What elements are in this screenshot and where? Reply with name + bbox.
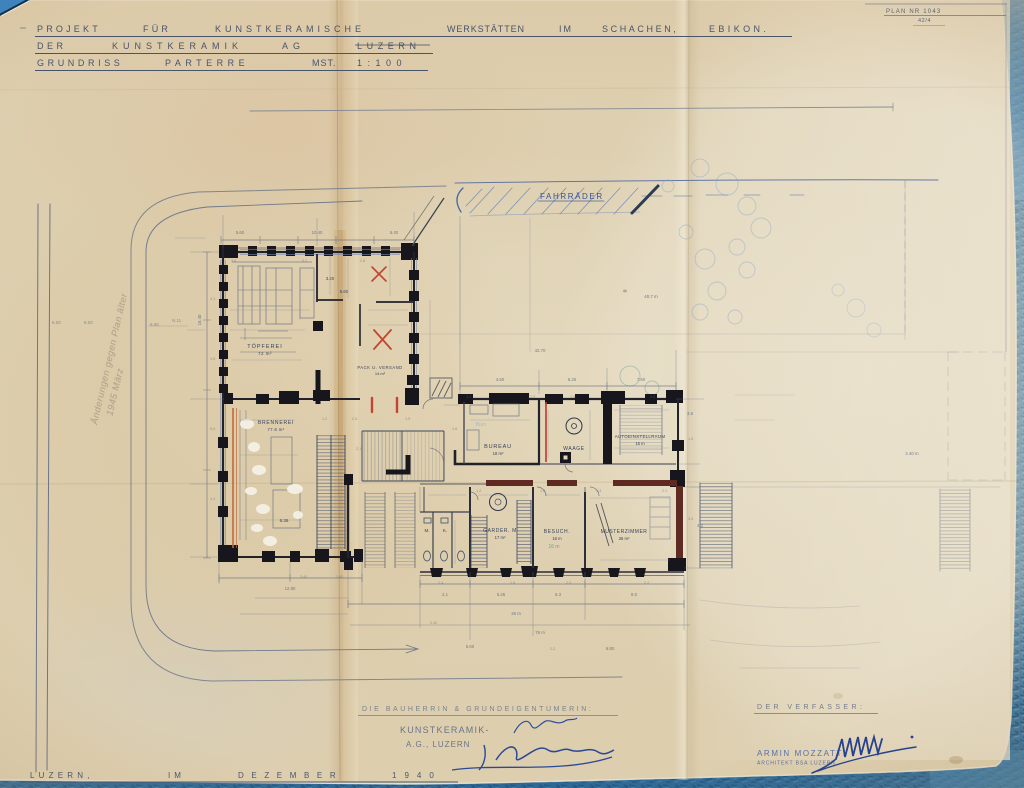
svg-text:5.40: 5.40	[390, 230, 399, 235]
svg-text:5.60: 5.60	[340, 289, 349, 294]
svg-text:WAAGE: WAAGE	[563, 446, 584, 452]
svg-text:4.4: 4.4	[210, 497, 215, 501]
svg-text:BESUCH.: BESUCH.	[544, 529, 570, 535]
svg-text:1.4: 1.4	[570, 395, 575, 399]
svg-text:KUNSTKERAMISCHE: KUNSTKERAMISCHE	[215, 24, 365, 34]
svg-text:2.40 m: 2.40 m	[905, 451, 919, 456]
svg-text:3.20: 3.20	[326, 276, 335, 281]
svg-text:72 m²: 72 m²	[258, 351, 272, 356]
svg-text:Büro: Büro	[476, 422, 487, 428]
svg-text:5.25: 5.25	[497, 592, 506, 597]
svg-text:2.8: 2.8	[360, 259, 365, 263]
svg-text:2.1: 2.1	[442, 592, 449, 597]
svg-text:26 m: 26 m	[511, 611, 521, 616]
svg-text:3.40: 3.40	[300, 575, 307, 579]
svg-text:6.00: 6.00	[52, 320, 61, 325]
svg-text:LUZERN,: LUZERN,	[30, 771, 94, 780]
svg-text:5.6: 5.6	[210, 427, 215, 431]
svg-text:DER VERFASSER:: DER VERFASSER:	[757, 704, 865, 711]
svg-text:ARMIN MOZZATTI: ARMIN MOZZATTI	[757, 749, 847, 758]
svg-text:2.0: 2.0	[566, 581, 571, 585]
svg-text:12.80: 12.80	[285, 586, 296, 591]
svg-text:GARDER. M: GARDER. M	[483, 528, 517, 534]
svg-text:IM: IM	[559, 24, 573, 34]
svg-text:1.9: 1.9	[405, 417, 410, 421]
svg-text:5.2: 5.2	[302, 259, 307, 263]
svg-text:16 m: 16 m	[548, 544, 559, 550]
svg-text:PARTERRE: PARTERRE	[165, 58, 249, 68]
svg-text:2.1: 2.1	[662, 489, 667, 493]
svg-text:16.40: 16.40	[197, 314, 202, 325]
svg-text:4.1: 4.1	[210, 297, 215, 301]
svg-text:2.2: 2.2	[644, 581, 649, 585]
svg-text:KUNSTKERAMIK-: KUNSTKERAMIK-	[400, 725, 490, 735]
svg-text:KUNSTKERAMIK: KUNSTKERAMIK	[112, 41, 243, 51]
svg-text:8.36: 8.36	[280, 518, 289, 523]
svg-text:1:100: 1:100	[357, 58, 407, 68]
svg-text:EBIKON.: EBIKON.	[709, 24, 769, 34]
svg-text:15 m: 15 m	[635, 441, 645, 446]
svg-text:2.6: 2.6	[650, 395, 655, 399]
svg-text:5.60: 5.60	[236, 230, 245, 235]
svg-text:1.40: 1.40	[430, 621, 437, 625]
svg-text:2.4: 2.4	[352, 417, 357, 421]
svg-text:1.2: 1.2	[322, 417, 327, 421]
svg-text:MUSTERZIMMER: MUSTERZIMMER	[601, 529, 648, 535]
svg-text:M.: M.	[425, 528, 430, 533]
svg-text:DEZEMBER: DEZEMBER	[238, 771, 343, 780]
svg-text:DER: DER	[37, 41, 67, 51]
svg-text:FÜR: FÜR	[143, 24, 171, 34]
svg-text:40.7 m: 40.7 m	[644, 294, 658, 299]
svg-text:5.25: 5.25	[568, 377, 577, 382]
svg-text:2.4: 2.4	[438, 581, 443, 585]
svg-text:LUZERN: LUZERN	[357, 41, 421, 51]
svg-text:4.50: 4.50	[496, 377, 505, 382]
svg-text:DIE BAUHERRIN & GRUNDEIGENTÜME: DIE BAUHERRIN & GRUNDEIGENTÜMERIN:	[362, 705, 593, 713]
svg-text:FAHRRÄDER: FAHRRÄDER	[540, 192, 604, 201]
svg-text:8.00: 8.00	[84, 320, 93, 325]
svg-text:1.80: 1.80	[336, 575, 343, 579]
svg-text:PLAN NR 1043: PLAN NR 1043	[886, 9, 941, 15]
svg-text:76 m: 76 m	[535, 630, 545, 635]
svg-text:3.2: 3.2	[688, 517, 693, 521]
svg-text:AG: AG	[282, 41, 305, 51]
svg-text:1.5: 1.5	[688, 437, 693, 441]
svg-text:A.G., LUZERN: A.G., LUZERN	[406, 740, 470, 749]
svg-text:1.8: 1.8	[510, 581, 515, 585]
svg-text:2.2: 2.2	[550, 647, 555, 651]
svg-text:16 m: 16 m	[552, 536, 562, 541]
svg-text:3.6: 3.6	[231, 259, 236, 263]
svg-text:14 m²: 14 m²	[375, 371, 386, 376]
svg-text:42/4: 42/4	[918, 18, 931, 24]
svg-text:18 m²: 18 m²	[493, 451, 504, 456]
svg-text:42.70: 42.70	[535, 348, 546, 353]
svg-text:PROJEKT: PROJEKT	[37, 24, 101, 34]
svg-text:TÖPFEREI: TÖPFEREI	[247, 343, 283, 350]
svg-text:36 m²: 36 m²	[619, 536, 630, 541]
svg-text:1.2: 1.2	[476, 489, 481, 493]
svg-text:AUTOEINSTELLRAUM: AUTOEINSTELLRAUM	[615, 434, 666, 439]
svg-text:1.6: 1.6	[452, 427, 457, 431]
svg-text:SCHACHEN,: SCHACHEN,	[602, 24, 678, 34]
svg-text:GRUNDRISS: GRUNDRISS	[37, 58, 123, 68]
svg-text:MST.: MST.	[312, 58, 337, 68]
svg-text:BUREAU: BUREAU	[484, 444, 512, 450]
svg-text:1940: 1940	[392, 771, 442, 780]
svg-text:2.2: 2.2	[530, 395, 535, 399]
svg-text:4.2: 4.2	[697, 523, 704, 528]
svg-text:5.60: 5.60	[466, 644, 475, 649]
svg-text:1.1: 1.1	[466, 395, 471, 399]
svg-text:BRENNEREI: BRENNEREI	[258, 420, 294, 426]
svg-text:8.0: 8.0	[631, 592, 638, 597]
svg-text:5.3: 5.3	[555, 592, 562, 597]
svg-text:2.1: 2.1	[356, 447, 361, 451]
svg-text:17 m²: 17 m²	[495, 535, 506, 540]
svg-text:6.80: 6.80	[606, 646, 615, 651]
svg-text:N.11: N.11	[172, 318, 182, 323]
svg-text:3.6: 3.6	[687, 411, 694, 416]
svg-text:77.6 m²: 77.6 m²	[268, 427, 285, 432]
svg-text:7.60: 7.60	[637, 377, 646, 382]
svg-text:ARCHITEKT BSA LUZERN: ARCHITEKT BSA LUZERN	[757, 761, 836, 767]
svg-text:IM: IM	[168, 771, 185, 780]
svg-text:WERKSTÄTTEN: WERKSTÄTTEN	[447, 24, 525, 34]
svg-text:K.: K.	[443, 528, 447, 533]
svg-text:3.8: 3.8	[210, 357, 215, 361]
svg-text:PACK U. VERSAND: PACK U. VERSAND	[357, 365, 402, 370]
